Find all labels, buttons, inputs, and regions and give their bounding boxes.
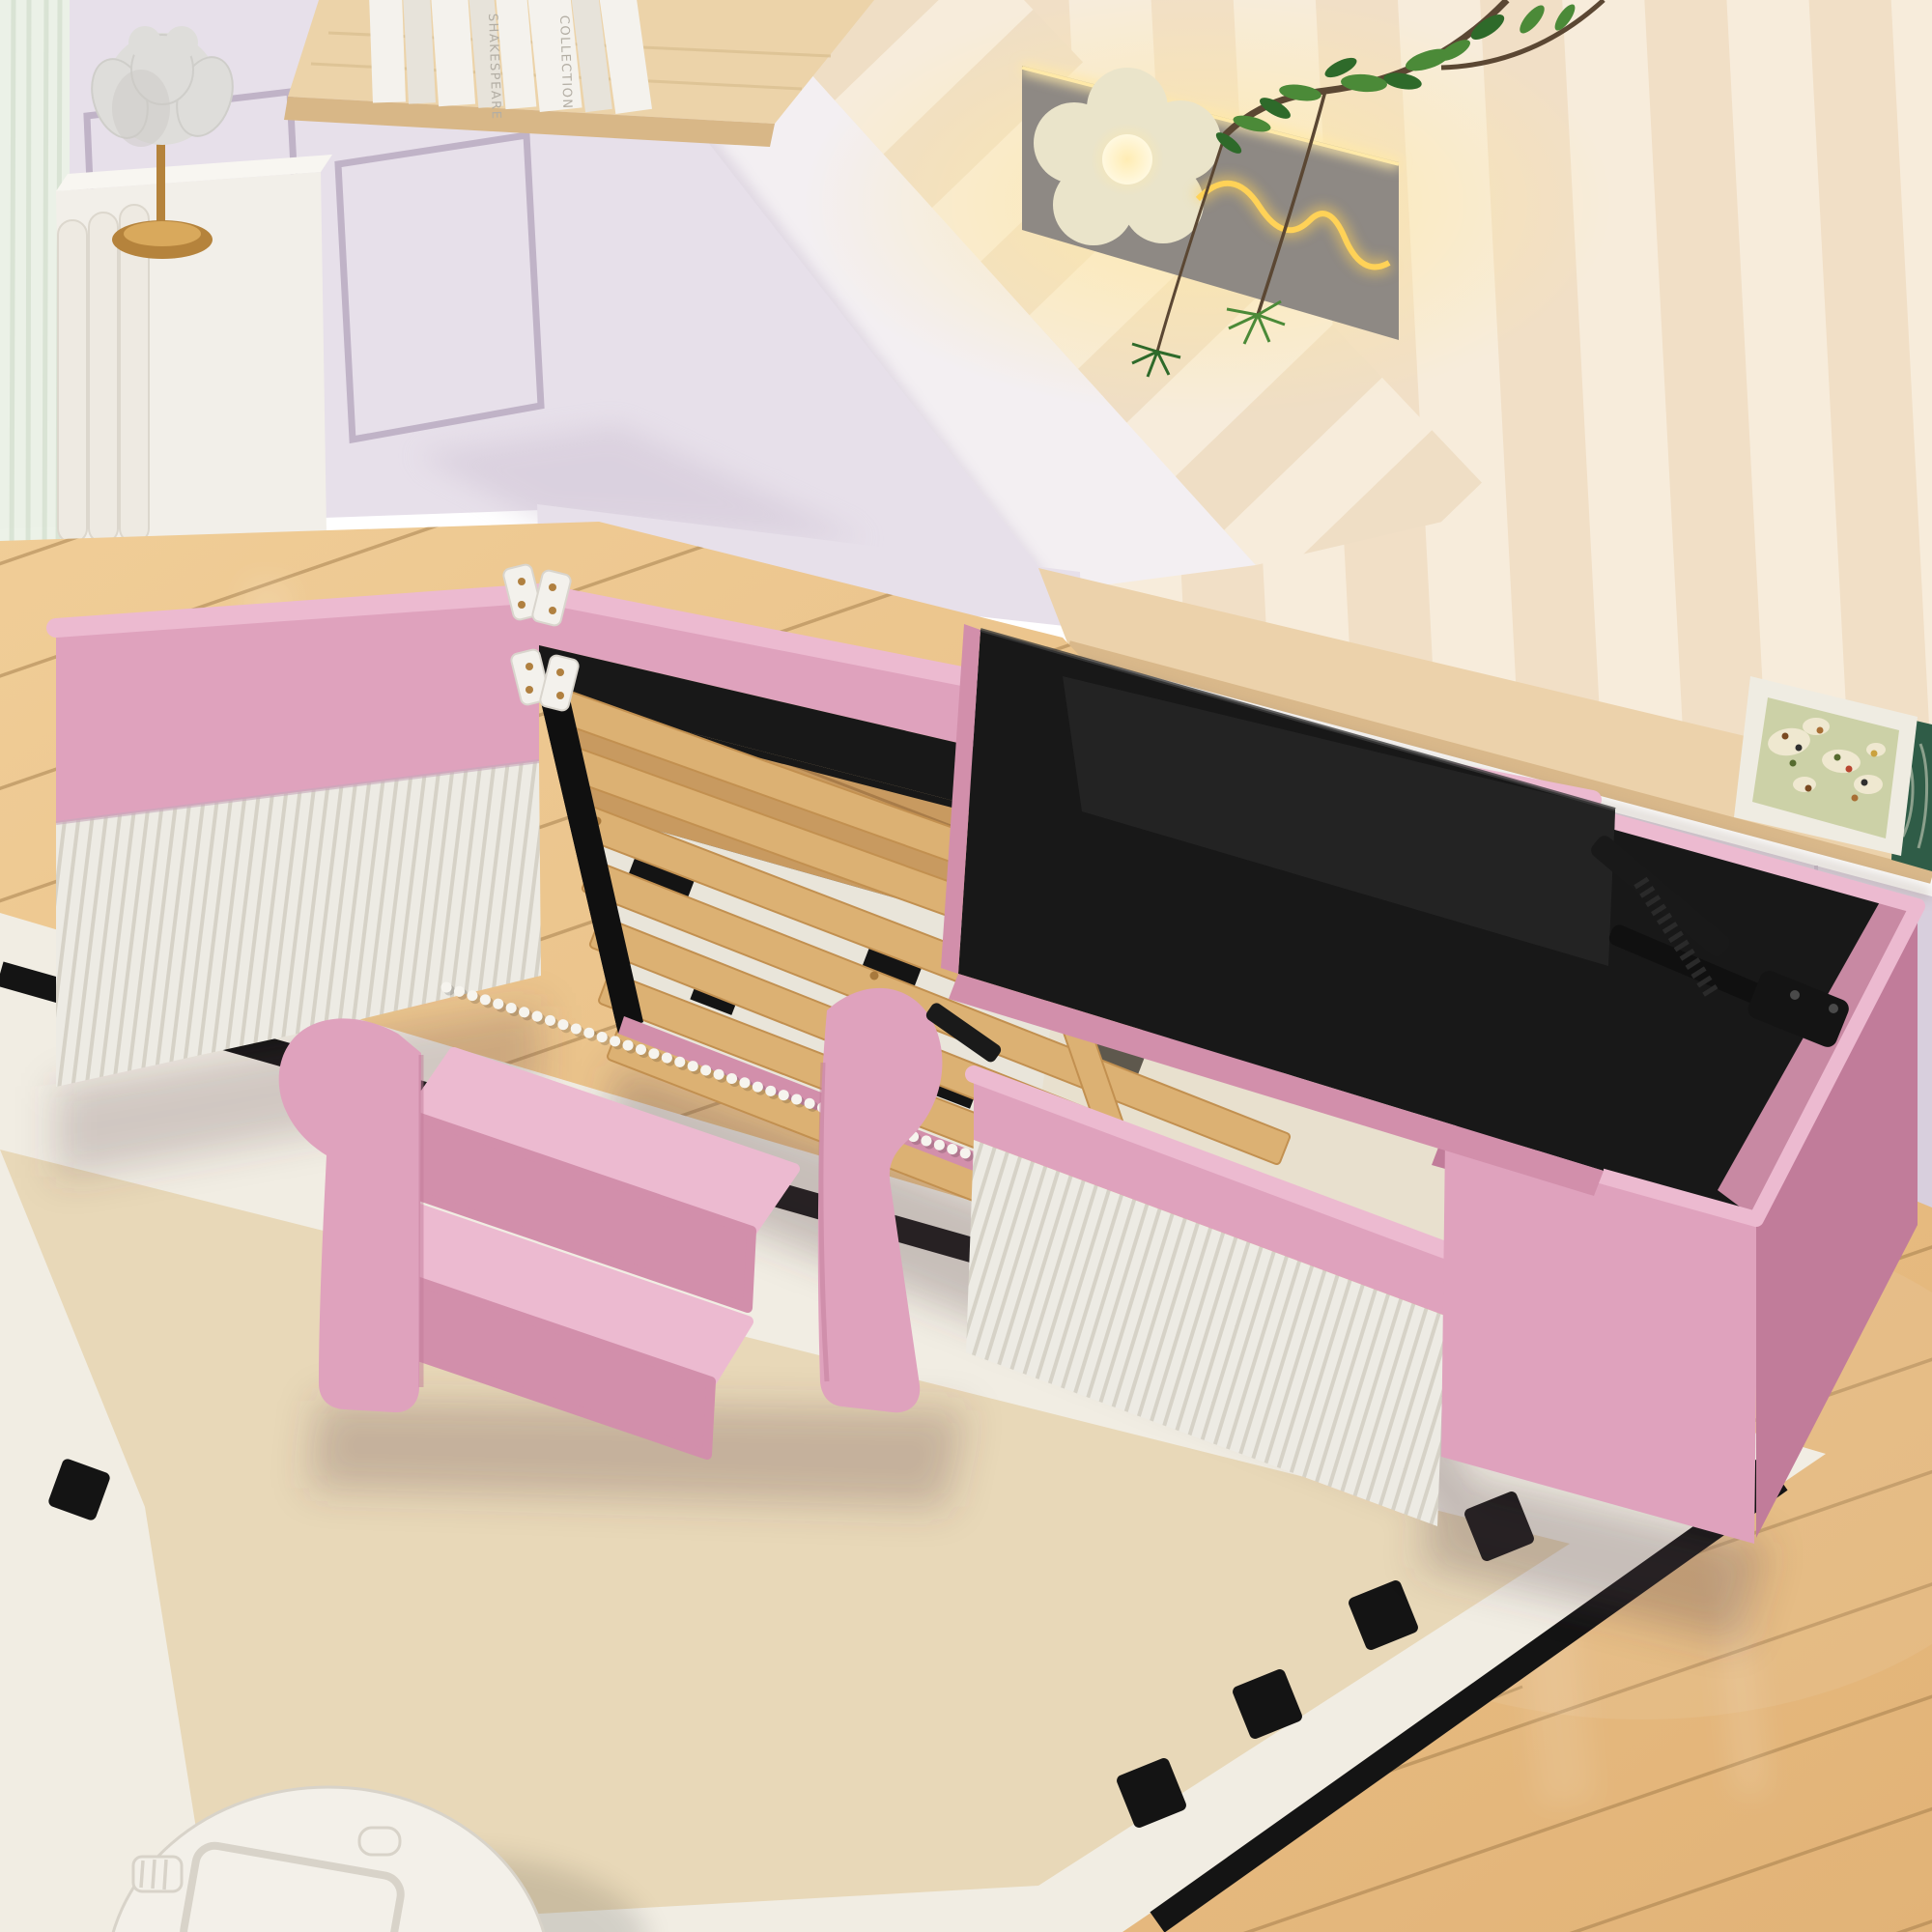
lamp-base-top bbox=[124, 221, 201, 246]
white-books: SHAKESPEARE COLLECTION bbox=[369, 0, 652, 121]
toy-bump bbox=[359, 1828, 400, 1855]
photo-canvas: SHAKESPEARE COLLECTION bbox=[0, 0, 1932, 1932]
scene-illustration: SHAKESPEARE COLLECTION bbox=[0, 0, 1932, 1932]
